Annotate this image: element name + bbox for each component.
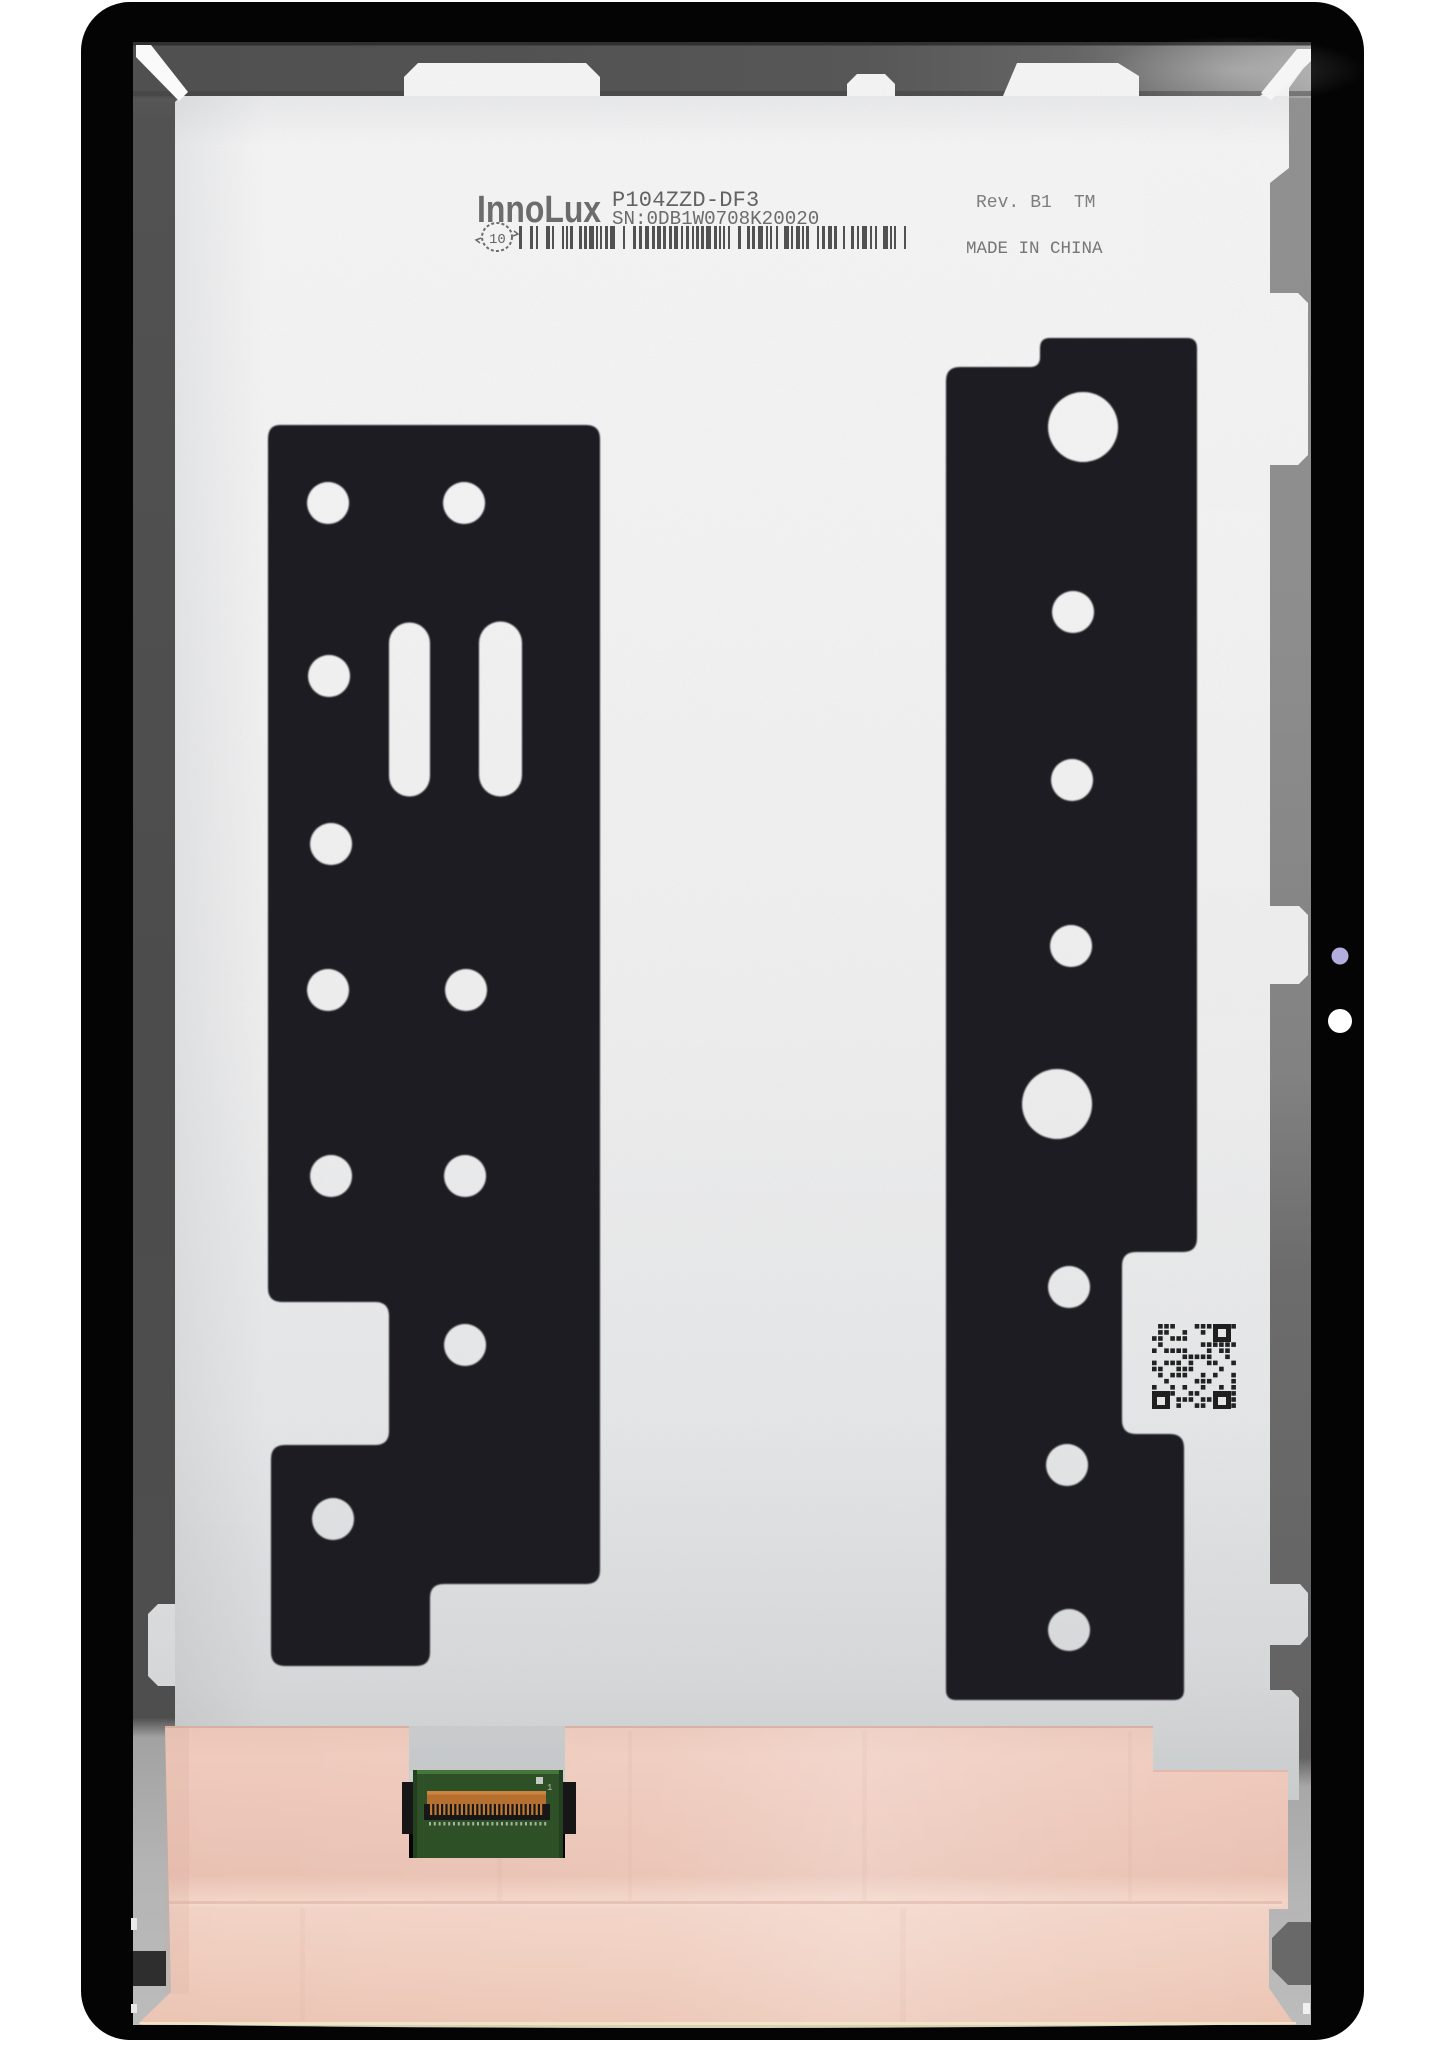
svg-text:MADE IN CHINA: MADE IN CHINA [966, 239, 1103, 259]
svg-text:10: 10 [489, 232, 506, 248]
svg-text:Rev.B1TM: Rev.B1TM [976, 193, 1095, 213]
svg-text:1: 1 [547, 1783, 552, 1793]
svg-text:InnoLux: InnoLux [477, 188, 602, 230]
